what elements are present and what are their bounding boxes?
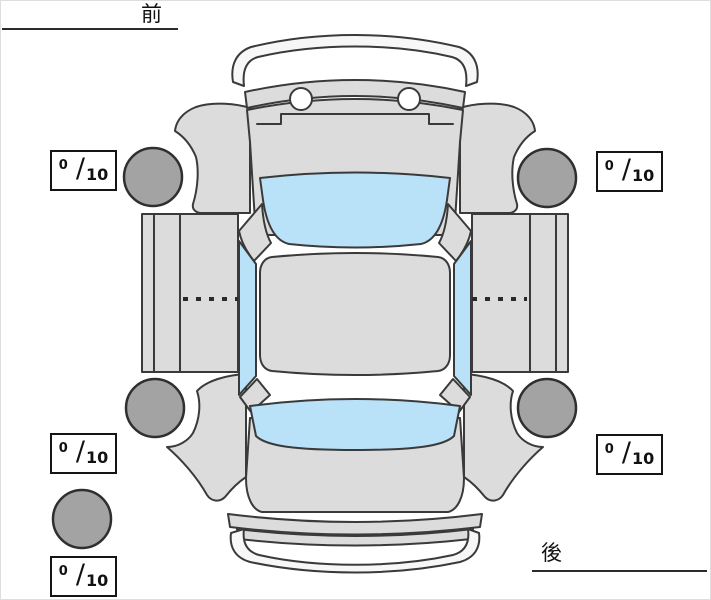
tire-rear-left [126, 379, 184, 437]
rocker-left-inner [154, 214, 180, 372]
score-value: 0 [59, 441, 68, 456]
score-separator: / [76, 559, 85, 590]
headlight-left-icon [290, 88, 312, 110]
tire-front-right [518, 149, 576, 207]
rear-label: 後 [541, 543, 562, 564]
score-value: 0 [605, 159, 614, 174]
score-value: 0 [59, 158, 68, 173]
score-max: 10 [632, 449, 654, 468]
front-bumper [232, 35, 477, 86]
score-value: 0 [59, 564, 68, 579]
front-underline [2, 28, 178, 30]
rocker-right-outer [556, 214, 568, 372]
score-separator: / [76, 436, 85, 467]
score-max: 10 [86, 165, 108, 184]
vehicle-condition-diagram: 前 後 0/10 0/10 0/10 0/10 0/10 [0, 0, 711, 600]
score-rear-left: 0/10 [50, 433, 117, 474]
rocker-right-inner [530, 214, 556, 372]
roof [260, 253, 450, 375]
headlight-right-icon [398, 88, 420, 110]
tire-front-left [124, 148, 182, 206]
score-rear-right: 0/10 [596, 434, 663, 475]
score-front-left: 0/10 [50, 150, 117, 191]
score-separator: / [76, 153, 85, 184]
front-label: 前 [141, 4, 162, 25]
side-window-left [239, 241, 256, 395]
windshield [260, 173, 450, 248]
score-max: 10 [86, 448, 108, 467]
side-window-right [454, 241, 471, 395]
rocker-left-outer [142, 214, 154, 372]
score-spare: 0/10 [50, 556, 117, 597]
score-separator: / [622, 154, 631, 185]
score-front-right: 0/10 [596, 151, 663, 192]
score-max: 10 [632, 166, 654, 185]
score-separator: / [622, 437, 631, 468]
score-value: 0 [605, 442, 614, 457]
rear-window [250, 399, 460, 450]
door-panel-left [180, 214, 238, 372]
car-top-view [0, 0, 711, 600]
front-fender-left [175, 104, 250, 213]
tire-spare [53, 490, 111, 548]
score-max: 10 [86, 571, 108, 590]
rear-underline [532, 570, 707, 572]
tire-rear-right [518, 379, 576, 437]
door-panel-right [472, 214, 530, 372]
